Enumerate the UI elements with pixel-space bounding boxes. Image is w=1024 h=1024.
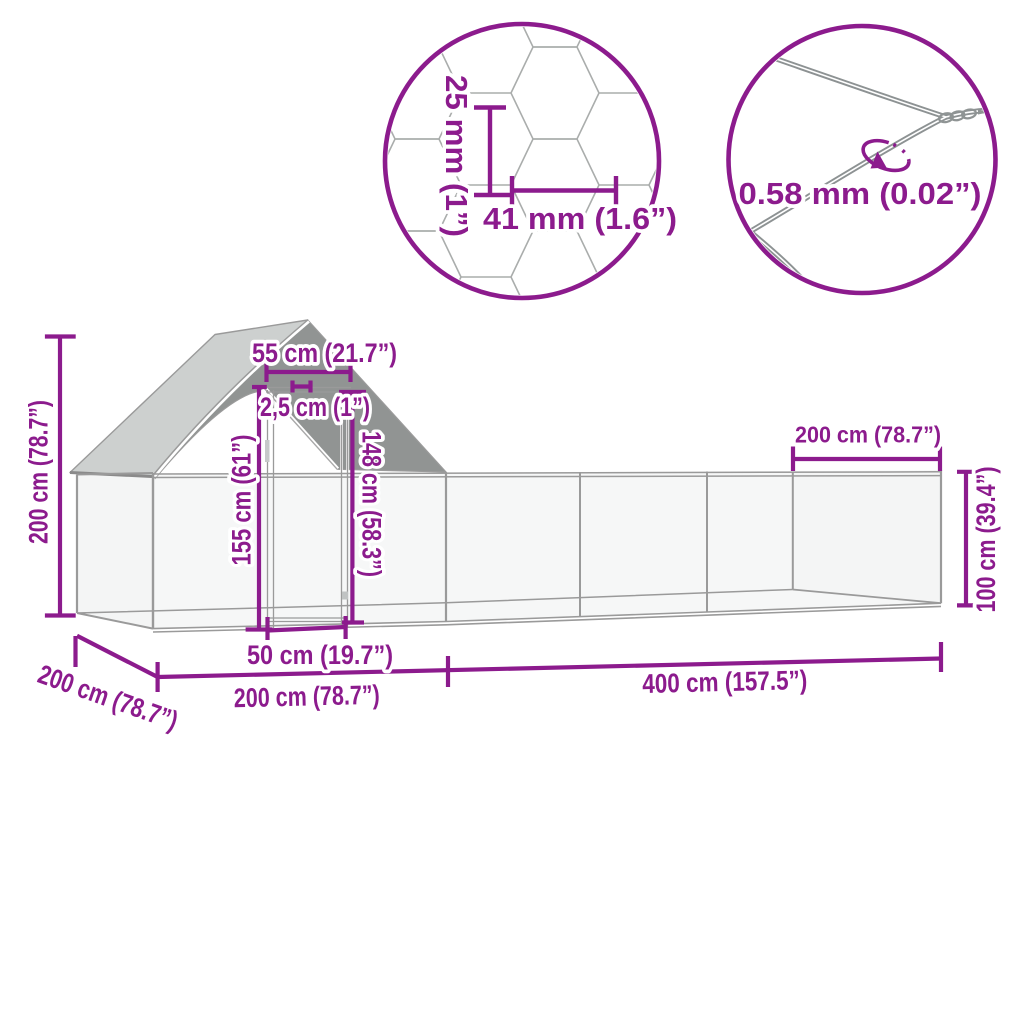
svg-text:100 cm (39.4”): 100 cm (39.4”): [971, 467, 1001, 613]
svg-text:155 cm (61”): 155 cm (61”): [227, 435, 257, 566]
svg-text:400 cm (157.5”): 400 cm (157.5”): [642, 665, 808, 699]
svg-text:41 mm (1.6”): 41 mm (1.6”): [483, 202, 677, 236]
svg-text:2,5 cm (1”): 2,5 cm (1”): [260, 392, 370, 422]
svg-text:200 cm (78.7”): 200 cm (78.7”): [24, 400, 54, 544]
svg-text:148 cm (58.3”): 148 cm (58.3”): [357, 431, 387, 577]
svg-text:200 cm (78.7”): 200 cm (78.7”): [233, 680, 380, 714]
svg-text:25 mm (1”): 25 mm (1”): [439, 75, 473, 237]
svg-text:200 cm (78.7”): 200 cm (78.7”): [795, 422, 941, 448]
svg-text:55 cm (21.7”): 55 cm (21.7”): [252, 338, 397, 368]
svg-text:0.58 mm (0.02”): 0.58 mm (0.02”): [739, 177, 982, 211]
svg-text:50 cm (19.7”): 50 cm (19.7”): [247, 640, 393, 670]
